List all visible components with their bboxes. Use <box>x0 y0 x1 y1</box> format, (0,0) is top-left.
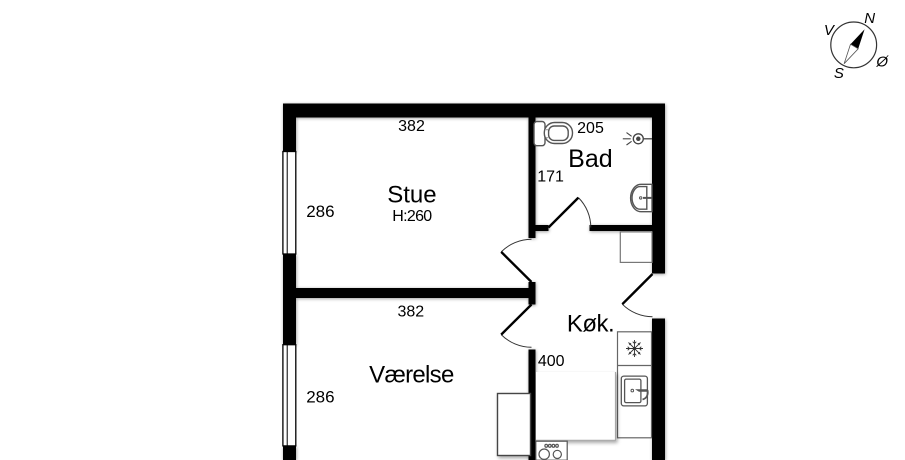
svg-text:Køk.: Køk. <box>567 311 614 338</box>
svg-text:205: 205 <box>577 120 604 137</box>
svg-text:382: 382 <box>397 304 424 321</box>
svg-text:V: V <box>824 22 836 39</box>
svg-text:Bad: Bad <box>568 145 612 173</box>
svg-text:286: 286 <box>306 202 334 221</box>
svg-text:400: 400 <box>538 353 565 370</box>
svg-text:286: 286 <box>306 388 334 407</box>
svg-text:H:260: H:260 <box>392 208 432 225</box>
svg-text:Ø: Ø <box>875 54 889 71</box>
svg-text:171: 171 <box>537 169 564 186</box>
svg-text:Stue: Stue <box>387 181 436 208</box>
svg-text:Værelse: Værelse <box>369 362 454 389</box>
svg-text:382: 382 <box>398 118 425 135</box>
svg-text:N: N <box>864 10 875 27</box>
svg-text:S: S <box>834 65 844 82</box>
